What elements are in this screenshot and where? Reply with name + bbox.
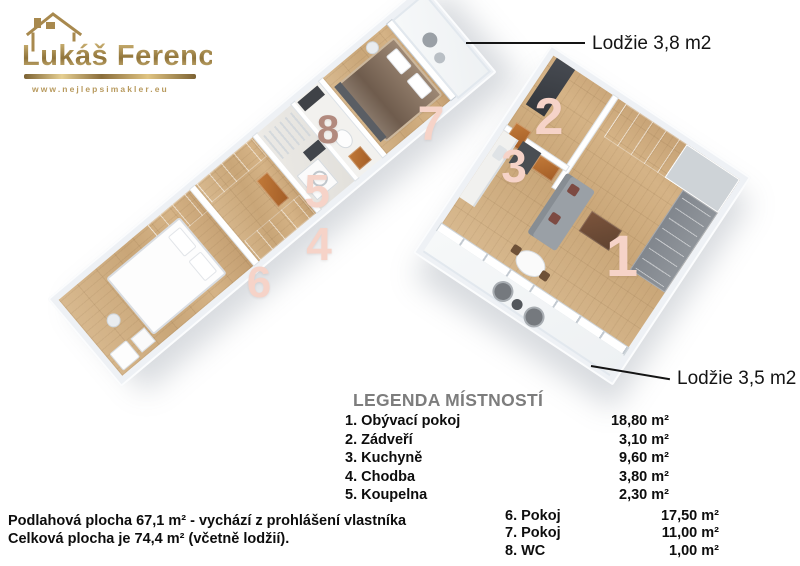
legend-room-area: 3,10 m² — [619, 431, 669, 450]
footer-note: Podlahová plocha 67,1 m² - vychází z pro… — [8, 513, 406, 548]
footer-line-2: Celková plocha je 74,4 m² (včetně lodžií… — [8, 531, 406, 549]
room-number-3: 3 — [501, 143, 527, 189]
legend-column-1: 1. Obývací pokoj 18,80 m² 2. Zádveří 3,1… — [345, 412, 669, 505]
footer-line-1: Podlahová plocha 67,1 m² - vychází z pro… — [8, 513, 406, 531]
room-number-1: 1 — [606, 228, 638, 286]
balcony-top-pointer-line — [466, 42, 585, 44]
legend-room-area: 17,50 m² — [661, 508, 719, 525]
legend-room-name: 4. Chodba — [345, 468, 415, 487]
legend-room-name: 7. Pokoj — [505, 525, 561, 542]
logo-divider-bar — [24, 74, 196, 79]
floorplan-page: Lukáš Ferenc www.nejlepsimakler.eu — [0, 0, 800, 566]
balcony-bottom-label: Lodžie 3,5 m2 — [677, 368, 796, 390]
brand-name: Lukáš Ferenc — [22, 40, 212, 73]
legend-room-area: 2,30 m² — [619, 486, 669, 505]
legend-row: 2. Zádveří 3,10 m² — [345, 431, 669, 450]
room-number-8: 8 — [317, 110, 339, 150]
legend-row: 3. Kuchyně 9,60 m² — [345, 449, 669, 468]
legend-room-area: 1,00 m² — [669, 543, 719, 560]
legend-room-name: 3. Kuchyně — [345, 449, 422, 468]
legend-title: LEGENDA MÍSTNOSTÍ — [353, 390, 543, 411]
legend-room-area: 3,80 m² — [619, 468, 669, 487]
sofa-cushion — [566, 183, 580, 197]
room-number-5: 5 — [304, 168, 330, 214]
legend-row: 1. Obývací pokoj 18,80 m² — [345, 412, 669, 431]
balcony-top-label: Lodžie 3,8 m2 — [592, 33, 711, 55]
legend-row: 5. Koupelna 2,30 m² — [345, 486, 669, 505]
legend-room-name: 6. Pokoj — [505, 508, 561, 525]
room-number-6: 6 — [247, 261, 271, 305]
legend-row: 4. Chodba 3,80 m² — [345, 468, 669, 487]
legend-room-name: 5. Koupelna — [345, 486, 427, 505]
room-number-4: 4 — [306, 221, 332, 267]
legend-room-area: 18,80 m² — [611, 412, 669, 431]
legend-row: 6. Pokoj 17,50 m² — [505, 508, 719, 525]
legend-row: 8. WC 1,00 m² — [505, 543, 719, 560]
legend-room-name: 8. WC — [505, 543, 545, 560]
legend-room-area: 9,60 m² — [619, 449, 669, 468]
pillow — [188, 251, 217, 281]
room-number-7: 7 — [418, 101, 445, 149]
legend-room-name: 1. Obývací pokoj — [345, 412, 460, 431]
legend-row: 7. Pokoj 11,00 m² — [505, 525, 719, 542]
room-number-2: 2 — [535, 91, 564, 143]
legend-column-2: 6. Pokoj 17,50 m² 7. Pokoj 11,00 m² 8. W… — [505, 508, 719, 560]
brand-website: www.nejlepsimakler.eu — [32, 84, 169, 94]
sofa-cushion — [548, 211, 562, 225]
pillow — [168, 227, 197, 257]
legend-room-area: 11,00 m² — [662, 525, 719, 542]
legend-room-name: 2. Zádveří — [345, 431, 413, 450]
brand-logo: Lukáš Ferenc www.nejlepsimakler.eu — [22, 10, 212, 98]
